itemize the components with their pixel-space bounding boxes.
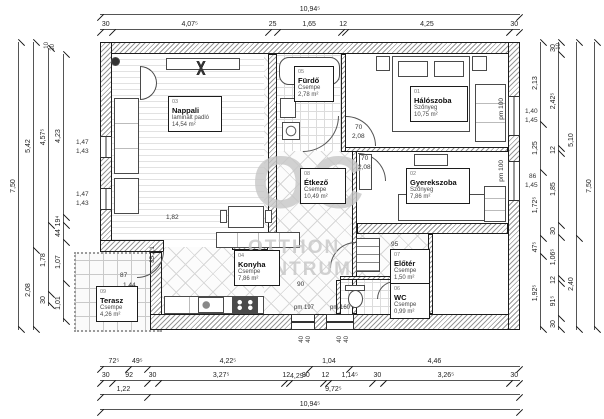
sill-tick-label: 40: [337, 336, 344, 343]
dim-small-label: 10: [556, 43, 563, 50]
dim-segment: 3,27⁵: [158, 370, 284, 383]
dim-label: 1,92⁵: [532, 285, 539, 302]
window-size-label: 1,47: [76, 191, 89, 198]
window-size-label: 86: [529, 173, 536, 180]
room-label-furdo: 05 Fürdő Csempe 2,78 m²: [294, 66, 334, 102]
room-name: Nappali: [172, 106, 218, 115]
dim-label: 1,07: [55, 256, 62, 270]
window-size-label: 1,43: [76, 200, 89, 207]
door-size-label: 2,08: [358, 164, 371, 171]
dim-segment: 2,40: [566, 238, 579, 330]
chair-icon: [220, 210, 227, 223]
dim-label: 30: [102, 21, 110, 28]
room-label-terasz: 09 Terasz Csempe 4,26 m²: [96, 286, 138, 322]
dim-segment: 2,08: [23, 250, 36, 330]
dim-chain-left-2: 5,42 2,08: [23, 42, 36, 330]
window-size-label: 1,40: [525, 108, 538, 115]
toilet-icon: [348, 290, 363, 308]
wall-segment: [345, 147, 508, 152]
parapet-label: pm 160: [330, 305, 350, 312]
sill-tick-label: 40: [344, 336, 351, 343]
dim-label: 4,07⁵: [181, 21, 198, 28]
dim-label: 2,40: [568, 277, 575, 291]
room-floor-type: Csempe: [304, 187, 342, 194]
door-size-label: 85 2,1: [150, 246, 157, 263]
lamp-icon: [111, 57, 120, 66]
window-size-label: 1,45: [525, 182, 538, 189]
room-area: 7,86 m²: [410, 194, 466, 201]
dim-segment: 30: [509, 370, 521, 383]
dim-label: 1,01: [55, 296, 62, 310]
sill-tick-label: 40: [306, 336, 313, 343]
dim-segment: 5,42: [23, 42, 36, 250]
dim-label: 44: [55, 229, 62, 237]
dim-segment: 1,07: [53, 242, 66, 283]
dim-chain-left-4: 4,23 19⁴ 44 1,07 1,01: [53, 54, 66, 322]
dim-label: 92: [125, 372, 133, 379]
dim-label: 10,94⁵: [300, 6, 320, 13]
dim-label: 7,50: [586, 179, 593, 193]
dim-label: 1,04: [322, 358, 336, 365]
dim-label: 1,25: [532, 141, 539, 155]
dim-label: 91⁵: [550, 295, 557, 306]
dim-chain-left-total: 7,50: [8, 42, 21, 330]
room-area: 10,49 m²: [304, 194, 342, 201]
dim-segment: 2,42⁵: [548, 54, 561, 148]
dim-label: 4,25: [420, 21, 434, 28]
room-floor-type: Csempe: [298, 85, 330, 92]
parapet-label: pm 100: [498, 98, 505, 120]
room-label-etkezo: 08 Étkező Csempe 10,49 m²: [300, 168, 346, 204]
dim-chain-right-2: 30 2,42⁵ 12 1,85 30 1,06⁵ 12 91⁵ 30: [548, 42, 561, 330]
dim-segment: 30: [509, 19, 521, 32]
dim-label: 1,85: [550, 182, 557, 196]
dim-chain-right-total: 7,50: [584, 42, 597, 330]
dim-segment: 30: [548, 318, 561, 330]
window-size-label: 1,45: [525, 117, 538, 124]
dim-label: 5,10: [568, 133, 575, 147]
dim-segment: 1,06⁵: [548, 237, 561, 278]
desk-icon: [414, 154, 448, 166]
room-floor-type: Csempe: [238, 269, 276, 276]
pillow-icon: [398, 61, 428, 77]
door-size-label: 87: [120, 272, 127, 279]
wardrobe-icon: [484, 186, 506, 222]
dim-label: 49⁵: [132, 358, 143, 365]
dim-segment: 5,10: [566, 42, 579, 238]
nightstand-icon: [472, 56, 487, 71]
dim-segment: 1,65: [277, 19, 340, 32]
dim-segment: 30: [147, 370, 159, 383]
dim-label: 1,78: [40, 253, 47, 267]
floor-plan-sheet: 10,94⁵ 30 4,07⁵ 25 1,65 12 4,25 30 72⁵ 4…: [0, 0, 604, 419]
room-floor-type: Szőnyeg: [410, 187, 466, 194]
dim-label: 30: [510, 372, 518, 379]
room-number: 05: [298, 69, 330, 76]
dim-label: 30: [510, 21, 518, 28]
dim-segment: 4,22⁵: [147, 356, 309, 369]
dim-label: 9,72⁵: [325, 386, 342, 393]
room-number: 07: [394, 252, 426, 259]
dim-label: 72⁵: [109, 358, 120, 365]
dim-segment: 4,46: [349, 356, 520, 369]
dim-chain-bottom-2: 30 92 30 3,27⁵ 12 90 12 1,14⁵ 30 3,26⁵ 3…: [100, 370, 520, 383]
dim-label: 30: [40, 296, 47, 304]
dim-label: 1,06⁵: [550, 249, 557, 266]
dim-chain-top-total: 10,94⁵: [100, 4, 520, 17]
dim-label: 30: [550, 227, 557, 235]
room-floor-type: Csempe: [100, 305, 134, 312]
dim-label: 1,65: [302, 21, 316, 28]
window-size-label: 1,43: [76, 148, 89, 155]
parapet-label: pm 197: [294, 305, 314, 312]
room-label-wc: 06 WC Csempe 0,99 m²: [390, 283, 430, 319]
dim-chain-left-3: 4,57⁵ 1,78 30: [38, 48, 51, 306]
dim-label: 5,42: [25, 139, 32, 153]
opening-size-label: 1,82: [166, 214, 179, 221]
room-name: Konyha: [238, 260, 276, 269]
toilet-tank-icon: [345, 285, 365, 291]
dim-label: 1,72⁵: [532, 197, 539, 214]
sink-icon: [198, 297, 224, 313]
room-name: WC: [394, 293, 426, 302]
room-area: 4,26 m²: [100, 312, 134, 319]
dim-label: 4,23: [55, 129, 62, 143]
ceiling-fan-icon: [187, 61, 215, 75]
window: [326, 314, 354, 330]
dim-segment: 30: [100, 370, 112, 383]
dim-label: 10,94⁵: [300, 401, 320, 408]
door-size-label: 70: [355, 124, 362, 131]
room-number: 04: [238, 253, 276, 260]
dim-segment: 9,72⁵: [147, 384, 520, 397]
dim-segment: 91⁵: [548, 283, 561, 319]
room-area: 7,86 m²: [238, 276, 276, 283]
dim-segment: 49⁵: [128, 356, 147, 369]
dim-segment: 1,92⁵: [530, 256, 543, 330]
dim-segment: 92: [112, 370, 147, 383]
dim-label: 30: [149, 372, 157, 379]
room-name: Fürdő: [298, 76, 330, 85]
room-label-konyha: 04 Konyha Csempe 7,86 m²: [234, 250, 280, 286]
room-label-nappali: 03 Nappali laminált padló 14,54 m²: [168, 96, 222, 132]
room-number: 08: [304, 171, 342, 178]
sofa-icon: [114, 178, 139, 214]
room-name: Terasz: [100, 296, 134, 305]
dim-label: 1,22: [117, 386, 131, 393]
room-label-gyerekszoba: 02 Gyerekszoba Szőnyeg 7,86 m²: [406, 168, 470, 204]
dim-label: 7,50: [10, 179, 17, 193]
dim-segment: 1,22: [100, 384, 147, 397]
dim-segment: 3,26⁵: [383, 370, 508, 383]
dim-segment: 1,14⁵: [328, 370, 372, 383]
room-number: 02: [410, 171, 466, 178]
dim-chain-bottom-1: 72⁵ 49⁵ 4,22⁵ 1,04 4,46: [100, 356, 520, 369]
window: [508, 96, 520, 136]
room-number: 03: [172, 99, 218, 106]
room-floor-type: laminált padló: [172, 115, 218, 122]
dim-label: 25: [269, 21, 277, 28]
dim-segment: 7,50: [584, 42, 597, 330]
dim-segment: 1,25: [530, 124, 543, 172]
dim-segment: 4,23: [53, 54, 66, 217]
dim-segment: 30: [372, 370, 384, 383]
room-area: 10,75 m²: [414, 112, 464, 119]
room-floor-type: Csempe: [394, 302, 426, 309]
dim-label: 30: [374, 372, 382, 379]
dim-chain-top-segments: 30 4,07⁵ 25 1,65 12 4,25 30: [100, 19, 520, 32]
room-floor-type: Csempe: [394, 268, 426, 275]
room-number: 09: [100, 289, 134, 296]
room-label-eloter: 07 Előtér Csempe 1,50 m²: [390, 249, 430, 285]
wall-segment: [100, 42, 520, 54]
opening-size-label: 95: [391, 241, 398, 248]
wall-segment: [357, 223, 508, 234]
dim-segment: 30: [38, 294, 51, 306]
washing-machine-icon: [282, 122, 300, 140]
stairs-icon: [356, 238, 380, 272]
window-size-label: 1,47: [76, 139, 89, 146]
dim-label: 3,27⁵: [213, 372, 230, 379]
dim-segment: 1,78: [38, 225, 51, 294]
window: [100, 188, 112, 210]
room-area: 0,99 m²: [394, 309, 426, 316]
opening-size-label: 90: [297, 281, 304, 288]
dim-label: 3,26⁵: [438, 372, 455, 379]
dim-segment: 10,94⁵: [100, 4, 520, 17]
room-number: 01: [414, 89, 464, 96]
room-corner-space: [430, 234, 508, 314]
nightstand-icon: [376, 56, 390, 71]
room-area: 1,50 m²: [394, 275, 426, 282]
room-name: Hálószoba: [414, 96, 464, 105]
room-number: 06: [394, 286, 426, 293]
dim-label: 4,22⁵: [220, 358, 237, 365]
window: [100, 136, 112, 158]
dim-segment: 1,85: [548, 153, 561, 225]
window: [291, 314, 315, 330]
room-floor-type: Szőnyeg: [414, 105, 464, 112]
dim-label: 47⁵: [532, 242, 539, 253]
dim-segment: 4,25: [345, 19, 508, 32]
dim-chain-bottom-3: 1,22 9,72⁵: [100, 384, 520, 397]
stove-icon: [232, 297, 258, 313]
room-name: Étkező: [304, 178, 342, 187]
dim-segment: 1,01: [53, 283, 66, 322]
door-size-label: 2,08: [352, 133, 365, 140]
dim-label: 2,13: [532, 76, 539, 90]
dim-segment: 7,50: [8, 42, 21, 330]
dim-label: 1,14⁵: [341, 372, 358, 379]
room-area: 14,54 m²: [172, 122, 218, 129]
dim-label: 4,46: [428, 358, 442, 365]
room-area: 2,78 m²: [298, 92, 330, 99]
dim-segment: 25: [268, 19, 278, 32]
dim-label: 4,57⁵: [40, 128, 47, 145]
pillow-icon: [434, 61, 464, 77]
dim-segment: 4,57⁵: [38, 48, 51, 225]
room-name: Előtér: [394, 259, 426, 268]
dim-segment: 4,07⁵: [112, 19, 268, 32]
dim-chain-bottom-total: 10,94⁵: [100, 399, 520, 412]
parapet-label: pm 100: [498, 160, 505, 182]
window: [508, 161, 520, 201]
dim-small-label: 30: [50, 44, 57, 51]
room-label-haloszoba: 01 Hálószoba Szőnyeg 10,75 m²: [410, 86, 468, 122]
dim-label: 2,42⁵: [550, 93, 557, 110]
sofa-icon: [114, 98, 139, 174]
dim-label: 2,08: [25, 283, 32, 297]
dim-chain-right-3: 5,10 2,40: [566, 42, 579, 330]
dim-segment: 30: [100, 19, 112, 32]
dim-segment: 1,04: [309, 356, 349, 369]
door-size-label: 70: [361, 155, 368, 162]
sill-tick-label: 40: [299, 336, 306, 343]
room-name: Gyerekszoba: [410, 178, 466, 187]
dim-label: 30: [102, 372, 110, 379]
dim-segment: 72⁵: [100, 356, 128, 369]
dim-overlay-label: 4,29⁵: [290, 373, 307, 381]
dim-label: 30: [550, 320, 557, 328]
dim-segment: 10,94⁵: [100, 399, 520, 412]
